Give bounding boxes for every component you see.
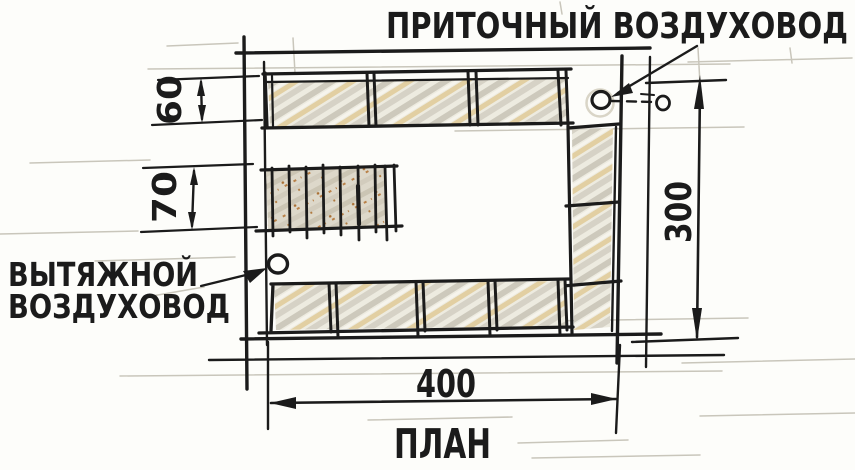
plan-title: ПЛАН xyxy=(394,420,491,468)
dim-400-label: 400 xyxy=(416,362,476,406)
scanned-plan-sketch: 60 70 300 400 ПРИТОЧНЫЙ ВОЗДУХОВОД ВЫТЯЖ… xyxy=(0,0,855,470)
duct-axis-dash xyxy=(641,94,654,95)
grate-shading xyxy=(266,167,386,230)
dim-400-arrow-right-icon xyxy=(591,393,617,405)
plan-drawing: 60 70 300 400 ПРИТОЧНЫЙ ВОЗДУХОВОД ВЫТЯЖ… xyxy=(0,0,855,470)
exhaust-leader-line xyxy=(201,274,250,286)
dim-70-arrow-up-icon xyxy=(190,167,198,185)
dim-60-arrow-up-icon xyxy=(197,78,205,96)
supply-duct-label: ПРИТОЧНЫЙ ВОЗДУХОВОД xyxy=(386,5,848,47)
dim-70-label: 70 xyxy=(145,171,184,223)
top-row-shading xyxy=(268,77,568,127)
dim-60-label: 60 xyxy=(150,75,189,125)
dim-60-arrow-down-icon xyxy=(198,105,206,123)
right-column-inner-edge xyxy=(612,127,616,331)
right-cage-column xyxy=(563,124,621,333)
duct-axis-dashed-line xyxy=(612,101,654,102)
dim-300-arrow-down-icon xyxy=(692,308,702,341)
dim-400-arrow-left-icon xyxy=(270,397,296,409)
dimension-center-hatch-depth: 70 xyxy=(141,164,257,232)
grate-bar-heavy xyxy=(358,186,359,224)
dim-70-arrow-down-icon xyxy=(188,212,196,230)
supply-duct-opening-icon xyxy=(592,92,610,109)
bottom-row-shading xyxy=(274,281,566,330)
bottom-cage-row xyxy=(259,279,573,337)
dim-300-label: 300 xyxy=(659,181,700,243)
center-hatch-grate xyxy=(256,165,402,240)
supply-duct-outside-mark xyxy=(657,96,670,110)
exhaust-duct-label-line2: ВОЗДУХОВОД xyxy=(8,287,230,326)
top-cage-row xyxy=(262,69,573,128)
right-column-shading xyxy=(572,128,613,330)
exhaust-duct-opening-icon xyxy=(269,255,288,273)
